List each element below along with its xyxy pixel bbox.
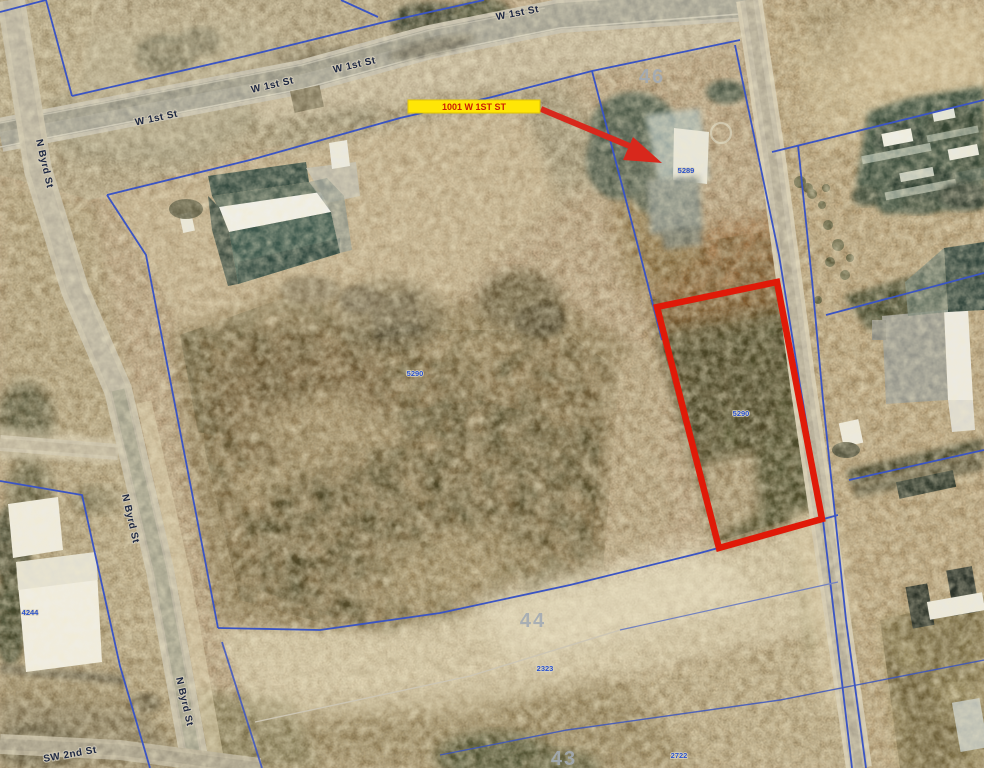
svg-text:43: 43 [551,748,577,768]
svg-text:44: 44 [520,610,546,632]
svg-text:2323: 2323 [537,664,554,673]
svg-text:5289: 5289 [678,166,695,175]
svg-text:4244: 4244 [22,608,40,617]
svg-text:46: 46 [639,66,665,88]
svg-text:5290: 5290 [407,369,424,378]
svg-text:5290: 5290 [733,409,750,418]
svg-text:1001 W 1ST ST: 1001 W 1ST ST [442,102,507,112]
svg-text:2722: 2722 [671,751,688,760]
